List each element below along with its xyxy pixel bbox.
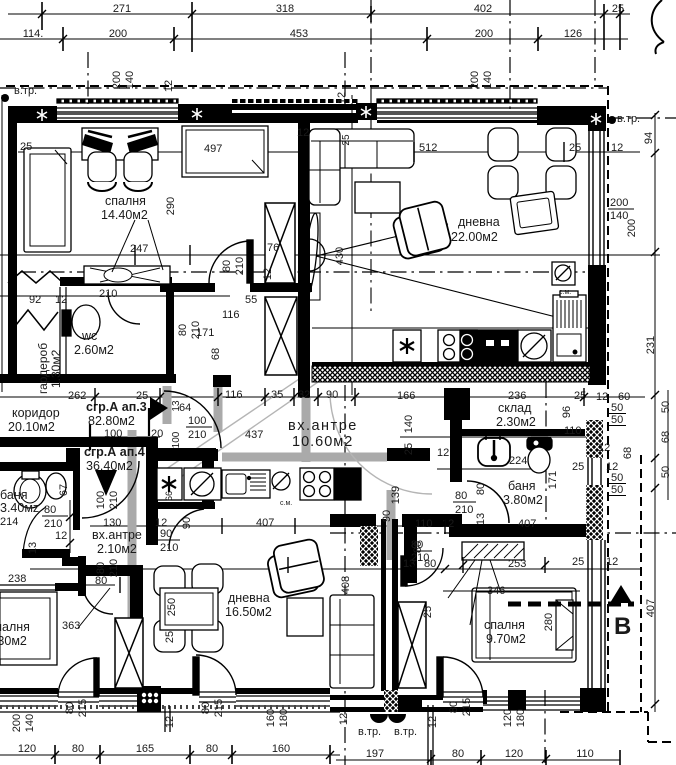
svg-text:50: 50 <box>611 414 623 426</box>
svg-text:120: 120 <box>18 743 36 755</box>
svg-text:100: 100 <box>95 491 107 509</box>
svg-text:25: 25 <box>20 141 32 153</box>
svg-text:дневна: дневна <box>228 591 270 605</box>
svg-text:346: 346 <box>487 585 505 597</box>
svg-text:10.60м2: 10.60м2 <box>292 434 353 450</box>
svg-text:12: 12 <box>55 294 67 306</box>
svg-text:2.10м2: 2.10м2 <box>97 542 137 556</box>
svg-text:20.10м2: 20.10м2 <box>8 420 55 434</box>
svg-text:12: 12 <box>55 530 67 542</box>
svg-text:67: 67 <box>58 484 70 496</box>
svg-text:80: 80 <box>200 702 212 714</box>
svg-text:120: 120 <box>502 709 514 727</box>
svg-text:110: 110 <box>415 518 433 530</box>
svg-text:12: 12 <box>606 556 618 568</box>
svg-text:2.60м2: 2.60м2 <box>74 343 114 357</box>
svg-text:50: 50 <box>611 472 623 484</box>
svg-text:90: 90 <box>181 517 193 529</box>
svg-text:25: 25 <box>572 556 584 568</box>
svg-text:12: 12 <box>338 713 350 725</box>
svg-text:36.40м2: 36.40м2 <box>86 459 133 473</box>
svg-text:253: 253 <box>508 558 526 570</box>
svg-text:110: 110 <box>564 425 582 437</box>
svg-text:140: 140 <box>24 714 36 732</box>
svg-text:512: 512 <box>419 142 437 154</box>
svg-text:12: 12 <box>163 80 175 92</box>
svg-text:290: 290 <box>165 197 177 215</box>
svg-text:спалня: спалня <box>484 618 525 632</box>
svg-text:96: 96 <box>561 406 573 418</box>
svg-text:80: 80 <box>95 575 107 587</box>
svg-text:12: 12 <box>164 716 176 728</box>
svg-text:236: 236 <box>508 390 526 402</box>
svg-text:238: 238 <box>8 573 26 585</box>
svg-text:22.00м2: 22.00м2 <box>451 230 498 244</box>
svg-text:9.70м2: 9.70м2 <box>486 632 526 646</box>
svg-text:коридор: коридор <box>12 406 60 420</box>
svg-text:247: 247 <box>130 243 148 255</box>
svg-text:баня: баня <box>0 488 28 502</box>
svg-text:160: 160 <box>272 743 290 755</box>
svg-text:200: 200 <box>610 197 628 209</box>
svg-text:13: 13 <box>27 542 39 554</box>
svg-text:130: 130 <box>103 517 121 529</box>
svg-text:64: 64 <box>179 402 191 414</box>
svg-text:180: 180 <box>278 709 290 727</box>
svg-text:437: 437 <box>245 429 263 441</box>
svg-text:в.тр.: в.тр. <box>14 85 37 97</box>
svg-text:210: 210 <box>108 559 120 577</box>
svg-text:453: 453 <box>290 28 308 40</box>
svg-text:в.тр.: в.тр. <box>394 726 417 738</box>
svg-text:12: 12 <box>336 92 348 104</box>
svg-text:склад: склад <box>498 401 532 415</box>
svg-text:407: 407 <box>645 599 657 617</box>
svg-text:дневна: дневна <box>458 215 500 229</box>
svg-text:224: 224 <box>509 455 527 467</box>
svg-text:200: 200 <box>109 28 127 40</box>
svg-text:спалня: спалня <box>0 620 30 634</box>
svg-text:120: 120 <box>505 748 523 760</box>
svg-text:80: 80 <box>44 504 56 516</box>
svg-text:497: 497 <box>204 143 222 155</box>
svg-text:90: 90 <box>160 528 172 540</box>
svg-text:14.40м2: 14.40м2 <box>101 208 148 222</box>
svg-text:210: 210 <box>188 429 206 441</box>
svg-text:94: 94 <box>643 132 655 144</box>
svg-text:12: 12 <box>427 716 439 728</box>
svg-text:68: 68 <box>210 348 222 360</box>
svg-text:140: 140 <box>124 71 136 89</box>
svg-text:116: 116 <box>222 309 240 321</box>
svg-text:в.тр.: в.тр. <box>358 726 381 738</box>
svg-text:25: 25 <box>422 606 434 618</box>
svg-text:55: 55 <box>245 294 257 306</box>
svg-text:100: 100 <box>171 431 182 448</box>
svg-text:12: 12 <box>442 518 454 530</box>
svg-text:в.тр.: в.тр. <box>617 113 640 125</box>
svg-text:спалня: спалня <box>105 194 146 208</box>
svg-text:116: 116 <box>225 389 243 401</box>
svg-text:262: 262 <box>68 390 86 402</box>
svg-text:200: 200 <box>11 714 23 732</box>
svg-text:80: 80 <box>412 541 424 553</box>
svg-text:210: 210 <box>234 257 246 275</box>
svg-text:12: 12 <box>596 391 608 403</box>
svg-text:197: 197 <box>366 748 384 760</box>
svg-text:80: 80 <box>475 483 487 495</box>
svg-text:20: 20 <box>151 428 163 440</box>
svg-text:280: 280 <box>543 613 555 631</box>
svg-text:200: 200 <box>475 28 493 40</box>
svg-text:200: 200 <box>626 219 638 237</box>
svg-text:171: 171 <box>547 471 559 489</box>
svg-text:140: 140 <box>482 71 494 89</box>
svg-text:210: 210 <box>108 491 120 509</box>
svg-text:12: 12 <box>262 268 274 280</box>
svg-text:76: 76 <box>267 242 279 254</box>
svg-text:140: 140 <box>403 415 415 433</box>
svg-text:4.30м2: 4.30м2 <box>0 634 27 648</box>
svg-text:231: 231 <box>645 336 657 354</box>
svg-text:160: 160 <box>265 709 277 727</box>
svg-text:80: 80 <box>455 490 467 502</box>
svg-text:110: 110 <box>576 748 594 760</box>
svg-text:214: 214 <box>0 516 18 528</box>
svg-text:16.50м2: 16.50м2 <box>225 605 272 619</box>
svg-text:80: 80 <box>95 562 107 574</box>
svg-text:25: 25 <box>403 443 415 455</box>
svg-text:180: 180 <box>515 709 527 727</box>
svg-text:50: 50 <box>660 401 672 413</box>
svg-text:35: 35 <box>271 389 283 401</box>
svg-text:2.30м2: 2.30м2 <box>496 415 536 429</box>
svg-text:25: 25 <box>572 461 584 473</box>
svg-text:166: 166 <box>397 390 415 402</box>
svg-text:50: 50 <box>611 402 623 414</box>
svg-text:407: 407 <box>256 517 274 529</box>
svg-text:с.м.: с.м. <box>280 500 292 507</box>
svg-text:вх.антре: вх.антре <box>288 418 358 434</box>
svg-text:80: 80 <box>221 260 233 272</box>
svg-text:318: 318 <box>276 3 294 15</box>
svg-text:363: 363 <box>62 620 80 632</box>
svg-text:100: 100 <box>188 415 206 427</box>
svg-text:80: 80 <box>72 743 84 755</box>
svg-text:271: 271 <box>113 3 131 15</box>
svg-text:210: 210 <box>99 288 117 300</box>
svg-text:3.40мz: 3.40мz <box>0 501 39 515</box>
svg-text:32: 32 <box>298 389 310 401</box>
svg-text:210: 210 <box>455 504 473 516</box>
svg-text:50: 50 <box>660 466 672 478</box>
svg-text:В: В <box>614 613 631 640</box>
svg-text:с.м.: с.м. <box>559 289 571 296</box>
svg-text:66: 66 <box>164 491 174 501</box>
svg-text:25: 25 <box>136 390 148 402</box>
svg-text:80: 80 <box>448 701 460 713</box>
svg-text:баня: баня <box>508 479 536 493</box>
svg-text:215: 215 <box>213 699 225 717</box>
svg-text:210: 210 <box>190 321 202 339</box>
svg-text:80: 80 <box>177 324 189 336</box>
svg-text:25: 25 <box>341 134 352 146</box>
svg-text:25: 25 <box>164 631 176 643</box>
svg-text:430: 430 <box>334 247 346 265</box>
svg-text:гардероб: гардероб <box>36 343 50 394</box>
svg-text:200: 200 <box>111 71 123 89</box>
svg-text:вх.антре: вх.антре <box>92 528 142 542</box>
svg-text:215: 215 <box>77 699 89 717</box>
svg-text:80: 80 <box>206 743 218 755</box>
svg-text:90: 90 <box>381 510 393 522</box>
svg-text:165: 165 <box>136 743 154 755</box>
svg-text:114.: 114. <box>23 28 44 40</box>
svg-text:1.30м2: 1.30м2 <box>49 349 63 388</box>
svg-text:25: 25 <box>569 142 581 154</box>
svg-text:408: 408 <box>340 576 352 594</box>
svg-text:139: 139 <box>390 486 402 504</box>
svg-text:80: 80 <box>64 702 76 714</box>
svg-text:215: 215 <box>461 698 473 716</box>
svg-text:126: 126 <box>564 28 582 40</box>
svg-text:90: 90 <box>326 389 338 401</box>
svg-text:82.80м2: 82.80м2 <box>88 414 135 428</box>
svg-text:12: 12 <box>598 442 610 454</box>
svg-text:13: 13 <box>475 513 487 525</box>
svg-text:wc: wc <box>81 329 97 343</box>
svg-text:сгр.А ап.4: сгр.А ап.4 <box>84 445 145 459</box>
svg-text:100: 100 <box>104 428 122 440</box>
svg-text:210: 210 <box>44 518 62 530</box>
svg-text:210: 210 <box>160 542 178 554</box>
svg-text:402: 402 <box>474 3 492 15</box>
svg-text:12: 12 <box>437 447 449 459</box>
svg-text:200: 200 <box>469 71 481 89</box>
svg-text:80: 80 <box>452 748 464 760</box>
svg-text:407: 407 <box>518 518 536 530</box>
svg-text:12: 12 <box>297 127 309 139</box>
svg-text:250: 250 <box>166 598 178 616</box>
svg-text:50: 50 <box>611 484 623 496</box>
svg-text:92: 92 <box>29 294 41 306</box>
svg-text:68: 68 <box>622 447 634 459</box>
svg-text:25: 25 <box>612 3 624 15</box>
svg-text:12: 12 <box>611 142 623 154</box>
svg-text:68: 68 <box>660 431 672 443</box>
svg-text:3.80м2: 3.80м2 <box>503 493 543 507</box>
